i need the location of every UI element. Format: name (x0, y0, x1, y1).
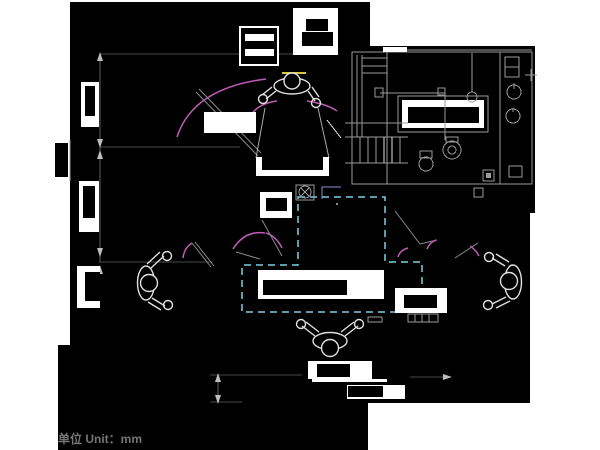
cad-viewport: 单位 Unit：mm (0, 0, 600, 450)
wardrobe (240, 27, 278, 65)
unit-note: 单位 Unit：mm (58, 431, 142, 446)
floor-plan-canvas: 单位 Unit：mm (0, 0, 600, 450)
desk-right (395, 288, 447, 313)
exterior-pier-block (55, 143, 68, 177)
bathroom-top-wall (383, 47, 407, 52)
bathroom-mass (347, 46, 535, 213)
plan-silhouette (55, 2, 535, 450)
window-3 (77, 266, 100, 308)
window-2 (79, 181, 99, 232)
hall-label-box (260, 192, 292, 218)
window-1 (81, 82, 99, 127)
desk-small-2 (347, 385, 405, 399)
stove-unit (293, 8, 338, 55)
side-table (204, 112, 256, 133)
desk-large (258, 270, 384, 299)
